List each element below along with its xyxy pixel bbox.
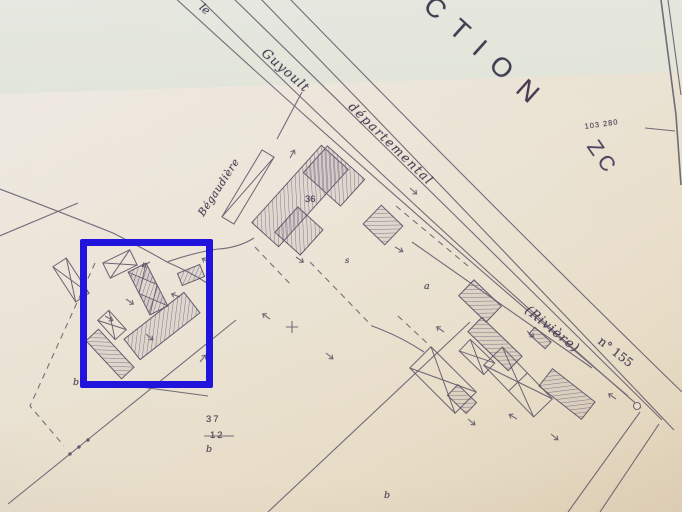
dashed-line <box>310 262 372 326</box>
coordinate-tick <box>645 128 675 131</box>
parcel-number-12-struck: 12 <box>210 430 225 441</box>
parcel-line <box>0 203 78 237</box>
parcel-letter-b: b <box>384 490 390 501</box>
sheet-border-inner-line <box>668 0 681 95</box>
parcel-letter-s: s <box>345 256 349 266</box>
highlight-rectangle <box>80 239 213 388</box>
building <box>363 205 403 245</box>
parcel-letter-a: a <box>424 281 430 292</box>
dashed-line <box>396 206 468 266</box>
parcel-letter-b: b <box>73 377 79 388</box>
cadastral-map-photo: CTION ZC 103 280 le Guyoult départementa… <box>0 0 682 512</box>
building <box>459 280 502 322</box>
parcel-line <box>141 387 208 396</box>
parcel-letter-b: b <box>206 444 212 455</box>
parcel-number-36: 36 <box>305 194 316 205</box>
branch-road-line <box>600 424 659 512</box>
branch-road-line <box>568 412 640 512</box>
dashed-line <box>255 247 292 286</box>
parcel-line <box>268 322 470 512</box>
sheet-border-line <box>661 0 681 185</box>
building <box>447 385 476 414</box>
survey-cross-icon <box>286 321 298 333</box>
parcel-line <box>277 92 302 139</box>
road-edge-east <box>258 0 674 430</box>
boundary-marker-circle <box>634 403 641 410</box>
parcel-number-37: 37 <box>206 414 221 425</box>
parcel-line <box>372 326 424 352</box>
